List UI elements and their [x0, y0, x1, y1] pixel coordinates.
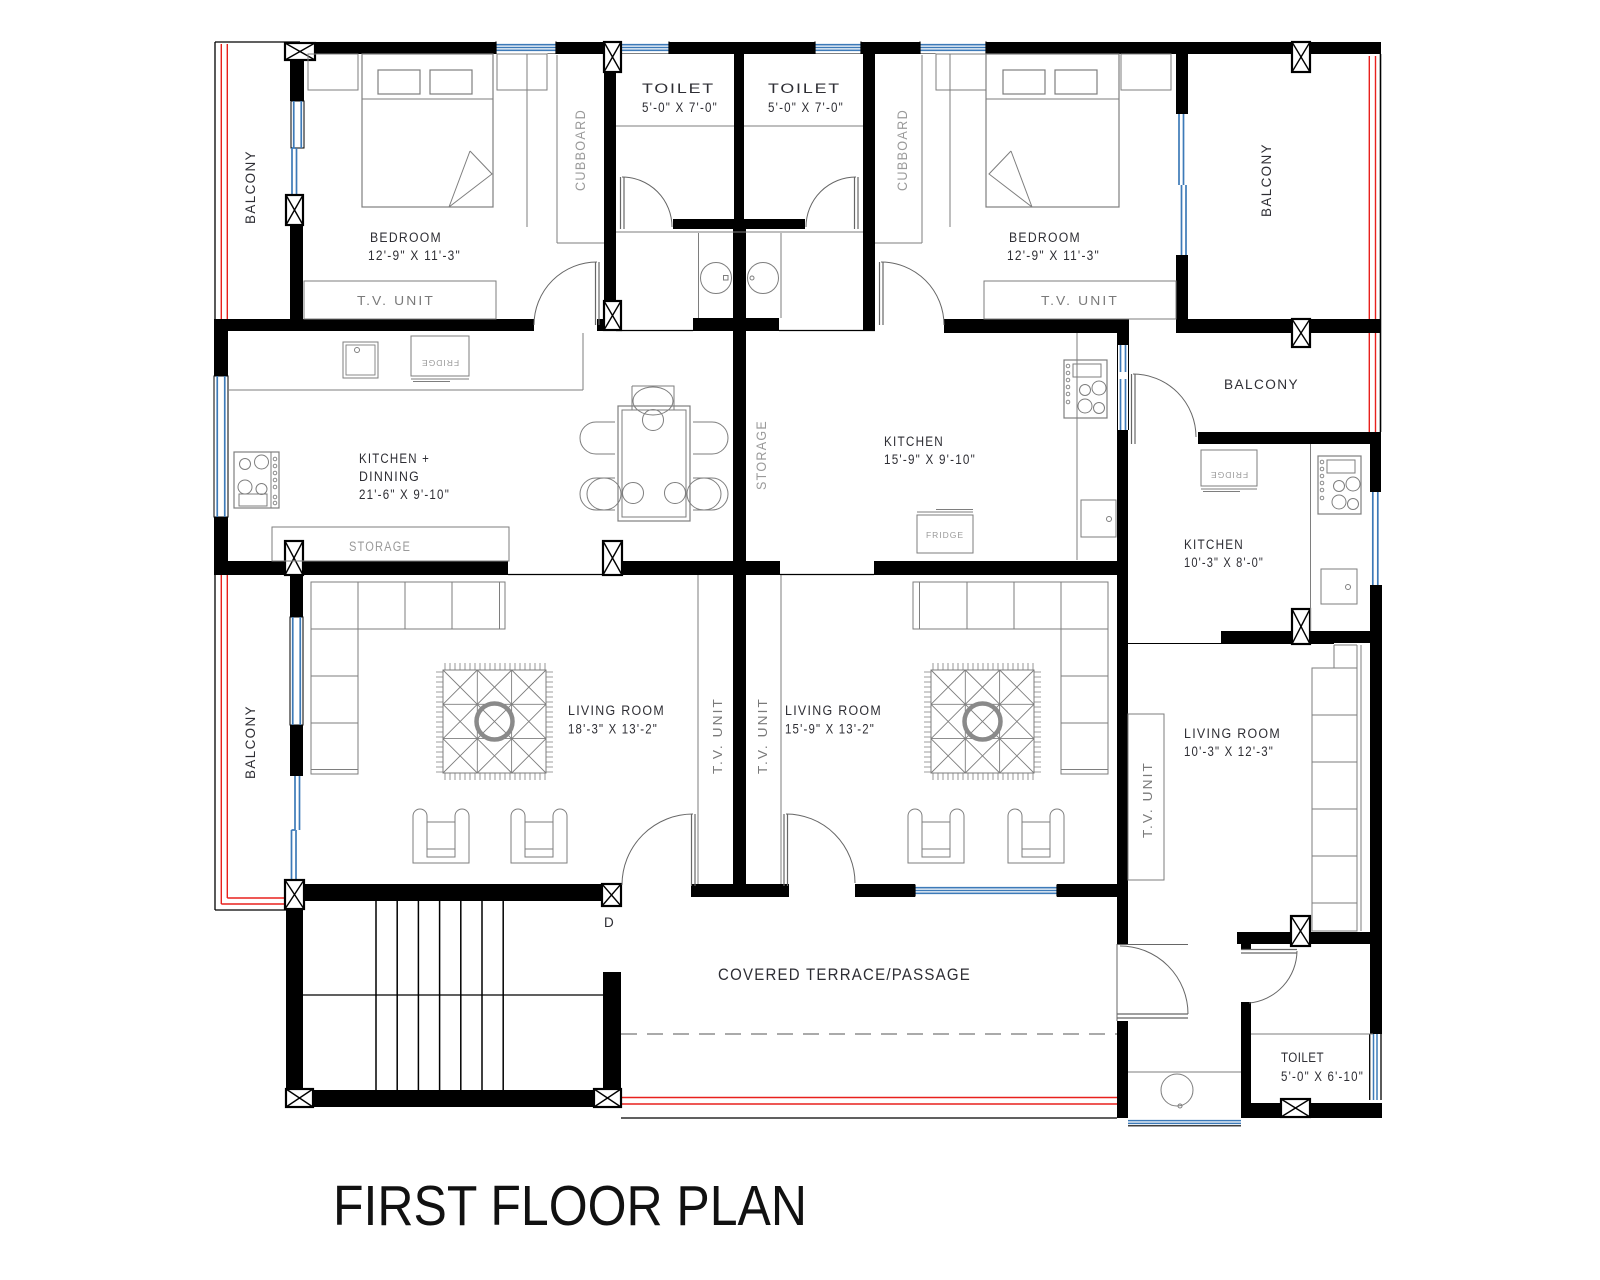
svg-text:T.V. UNIT: T.V. UNIT — [710, 697, 725, 774]
svg-text:21'-6" X 9'-10": 21'-6" X 9'-10" — [359, 487, 450, 502]
svg-text:STORAGE: STORAGE — [349, 539, 411, 554]
svg-text:15'-9" X 13'-2": 15'-9" X 13'-2" — [785, 722, 875, 737]
svg-text:BEDROOM: BEDROOM — [1009, 230, 1081, 245]
svg-text:KITCHEN: KITCHEN — [1184, 537, 1244, 552]
svg-text:LIVING ROOM: LIVING ROOM — [785, 703, 882, 718]
svg-text:FRIDGE: FRIDGE — [421, 358, 459, 368]
svg-text:5'-0" X 7'-0": 5'-0" X 7'-0" — [768, 100, 844, 115]
svg-text:15'-9" X 9'-10": 15'-9" X 9'-10" — [884, 452, 976, 467]
svg-text:FIRST FLOOR PLAN: FIRST FLOOR PLAN — [333, 1174, 807, 1238]
svg-text:CUBBOARD: CUBBOARD — [573, 109, 588, 191]
svg-text:12'-9" X 11'-3": 12'-9" X 11'-3" — [1007, 248, 1100, 263]
svg-text:KITCHEN: KITCHEN — [884, 434, 944, 449]
svg-text:LIVING ROOM: LIVING ROOM — [1184, 726, 1281, 741]
svg-text:18'-3" X 13'-2": 18'-3" X 13'-2" — [568, 722, 658, 737]
svg-text:BEDROOM: BEDROOM — [370, 230, 442, 245]
svg-text:COVERED TERRACE/PASSAGE: COVERED TERRACE/PASSAGE — [718, 965, 971, 984]
svg-text:TOILET: TOILET — [768, 81, 841, 96]
svg-text:BALCONY: BALCONY — [1259, 143, 1274, 217]
svg-text:LIVING ROOM: LIVING ROOM — [568, 703, 665, 718]
svg-text:BALCONY: BALCONY — [1224, 377, 1299, 392]
svg-text:T.V. UNIT: T.V. UNIT — [357, 293, 435, 308]
svg-text:DINNING: DINNING — [359, 469, 420, 484]
svg-text:FRIDGE: FRIDGE — [1210, 470, 1248, 480]
svg-text:KITCHEN +: KITCHEN + — [359, 451, 430, 466]
svg-text:10'-3" X 12'-3": 10'-3" X 12'-3" — [1184, 744, 1274, 759]
svg-text:STORAGE: STORAGE — [754, 420, 769, 490]
svg-text:CUBBOARD: CUBBOARD — [895, 109, 910, 191]
svg-text:BALCONY: BALCONY — [243, 705, 258, 779]
svg-text:BALCONY: BALCONY — [243, 150, 258, 224]
svg-text:T.V. UNIT: T.V. UNIT — [755, 697, 770, 774]
svg-text:10'-3" X 8'-0": 10'-3" X 8'-0" — [1184, 555, 1264, 570]
svg-text:12'-9" X 11'-3": 12'-9" X 11'-3" — [368, 248, 461, 263]
svg-text:TOILET: TOILET — [642, 81, 715, 96]
svg-text:T.V. UNIT: T.V. UNIT — [1140, 761, 1155, 838]
svg-text:FRIDGE: FRIDGE — [926, 530, 964, 540]
svg-text:TOILET: TOILET — [1281, 1050, 1324, 1065]
svg-text:D: D — [604, 915, 615, 930]
svg-text:5'-0" X 6'-10": 5'-0" X 6'-10" — [1281, 1069, 1364, 1084]
svg-text:T.V. UNIT: T.V. UNIT — [1041, 293, 1119, 308]
svg-text:5'-0" X 7'-0": 5'-0" X 7'-0" — [642, 100, 718, 115]
